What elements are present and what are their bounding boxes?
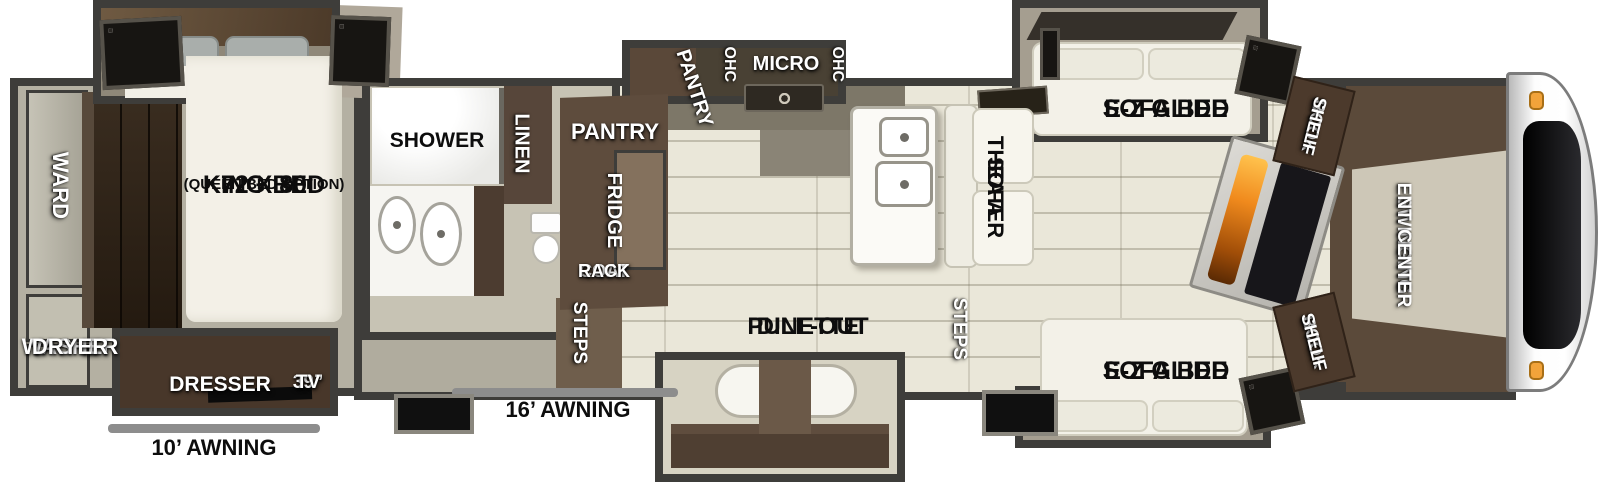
vanity-counter [370, 186, 474, 296]
ez-glide-bottom-label: E-Z GLIDE SOFA BED [1078, 342, 1254, 400]
ohc-left-label: OHC [712, 36, 746, 92]
washer-dryer-label: WASHER DRYER [2, 318, 138, 376]
mirrored-wardrobe [94, 92, 182, 328]
rv-floorplan: WARD 72 X 80 KING BED (QUEEN BED OPTION)… [0, 0, 1600, 490]
sofa-cushion [1048, 400, 1148, 432]
king-bed-label: 72 X 80 KING BED (QUEEN BED OPTION) [188, 138, 340, 232]
window-icon [1040, 28, 1060, 80]
awning-16-label: 16’ AWNING [478, 396, 658, 424]
vanity-cabinet [474, 186, 504, 296]
sink-icon [420, 202, 462, 266]
kitchen-island [850, 106, 938, 266]
marker-light-icon [1529, 361, 1544, 380]
window-icon [329, 15, 391, 87]
pantry-label: PANTRY [560, 118, 670, 146]
theater-sofa-label: SOFA THEATER [952, 106, 1038, 268]
tv-label: 39” TV [282, 360, 334, 406]
micro-label: MICRO [750, 52, 822, 76]
toilet-tank [530, 212, 562, 234]
dinette-label: PULL-OUT DINETTE [718, 298, 898, 356]
sofa-cushion [1148, 48, 1246, 80]
ward-label: WARD [30, 120, 90, 250]
sink-icon [879, 117, 929, 157]
dinette-pedestal [759, 360, 811, 434]
sofa-cushion [1152, 400, 1244, 432]
steps-label-left: STEPS [558, 288, 600, 378]
marker-light-icon [1529, 91, 1544, 110]
sink-icon [378, 196, 416, 254]
ez-glide-top-label: E-Z GLIDE SOFA BED [1078, 80, 1254, 138]
awning-bar-10ft [108, 424, 320, 433]
cooktop-icon [744, 84, 824, 112]
steps-label-right: STEPS [938, 286, 980, 372]
dinette-slideout [655, 352, 905, 482]
ohc-right-label: OHC [820, 36, 854, 92]
kitchen-counter [760, 130, 856, 176]
dresser-label: DRESSER [150, 372, 290, 398]
toilet-icon [532, 234, 560, 264]
entry-step-icon [982, 390, 1058, 436]
front-cap-window [1523, 121, 1581, 349]
entry-step-icon [394, 394, 474, 434]
sink-icon [875, 161, 933, 207]
awning-10-label: 10’ AWNING [118, 434, 310, 462]
linen-label: LINEN [496, 88, 546, 198]
front-cap [1506, 72, 1598, 392]
ent-center-label: SWINGING ENT. CENTER [1368, 156, 1438, 334]
shower-label: SHOWER [372, 128, 502, 154]
window-icon [99, 16, 185, 90]
